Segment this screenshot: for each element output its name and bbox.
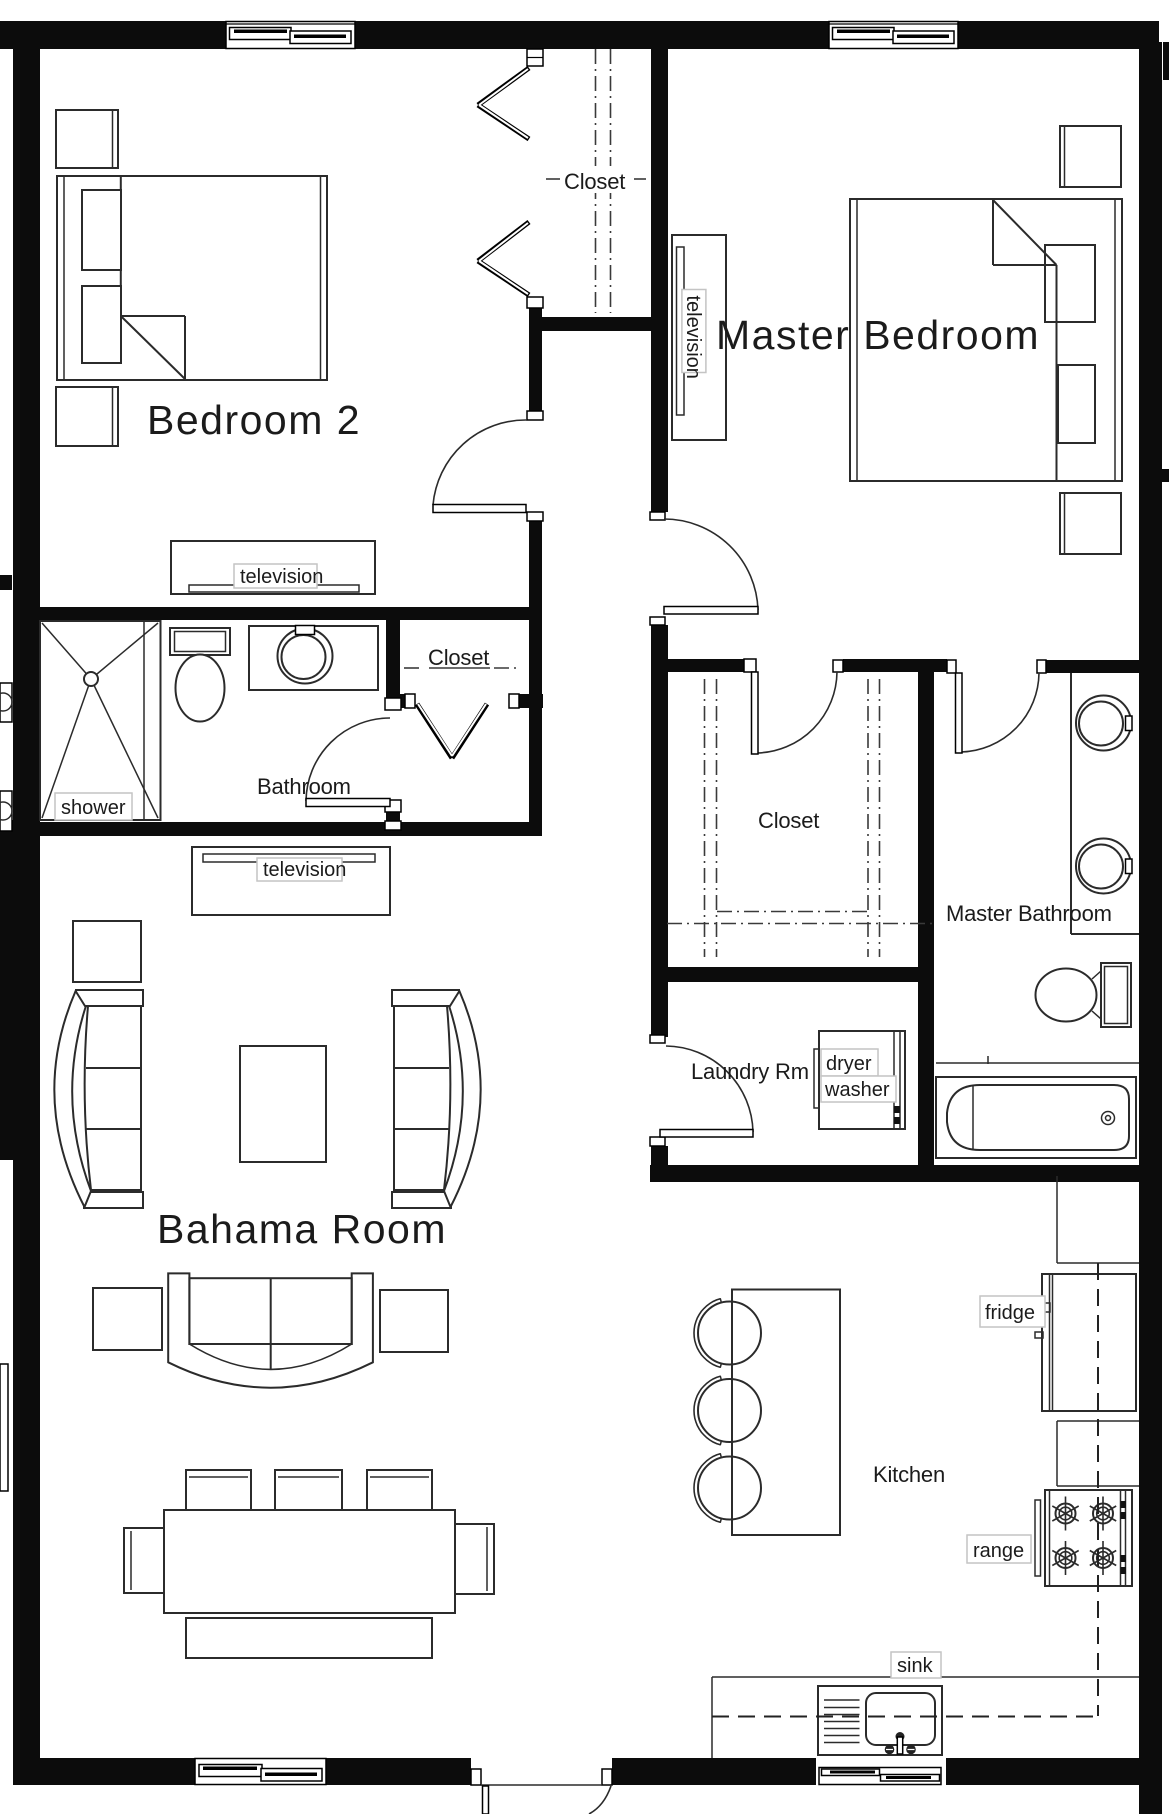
svg-text:range: range <box>973 1540 1024 1562</box>
svg-text:Bathroom: Bathroom <box>257 774 351 799</box>
svg-text:Laundry Rm: Laundry Rm <box>691 1059 809 1084</box>
svg-text:fridge: fridge <box>985 1302 1035 1324</box>
svg-text:Closet: Closet <box>564 169 625 194</box>
svg-text:Kitchen: Kitchen <box>873 1462 945 1487</box>
svg-text:washer: washer <box>824 1079 890 1101</box>
svg-text:Closet: Closet <box>428 645 489 670</box>
svg-text:Master Bedroom: Master Bedroom <box>716 312 1040 358</box>
svg-text:Bahama Room: Bahama Room <box>157 1206 447 1252</box>
svg-text:Master Bathroom: Master Bathroom <box>946 901 1112 926</box>
svg-text:television: television <box>240 566 323 588</box>
svg-text:shower: shower <box>61 797 126 819</box>
svg-text:Bedroom 2: Bedroom 2 <box>147 397 361 443</box>
svg-text:sink: sink <box>897 1655 934 1677</box>
svg-text:television: television <box>263 859 346 881</box>
svg-text:Closet: Closet <box>758 808 819 833</box>
svg-text:television: television <box>682 296 704 379</box>
svg-text:dryer: dryer <box>826 1053 872 1075</box>
